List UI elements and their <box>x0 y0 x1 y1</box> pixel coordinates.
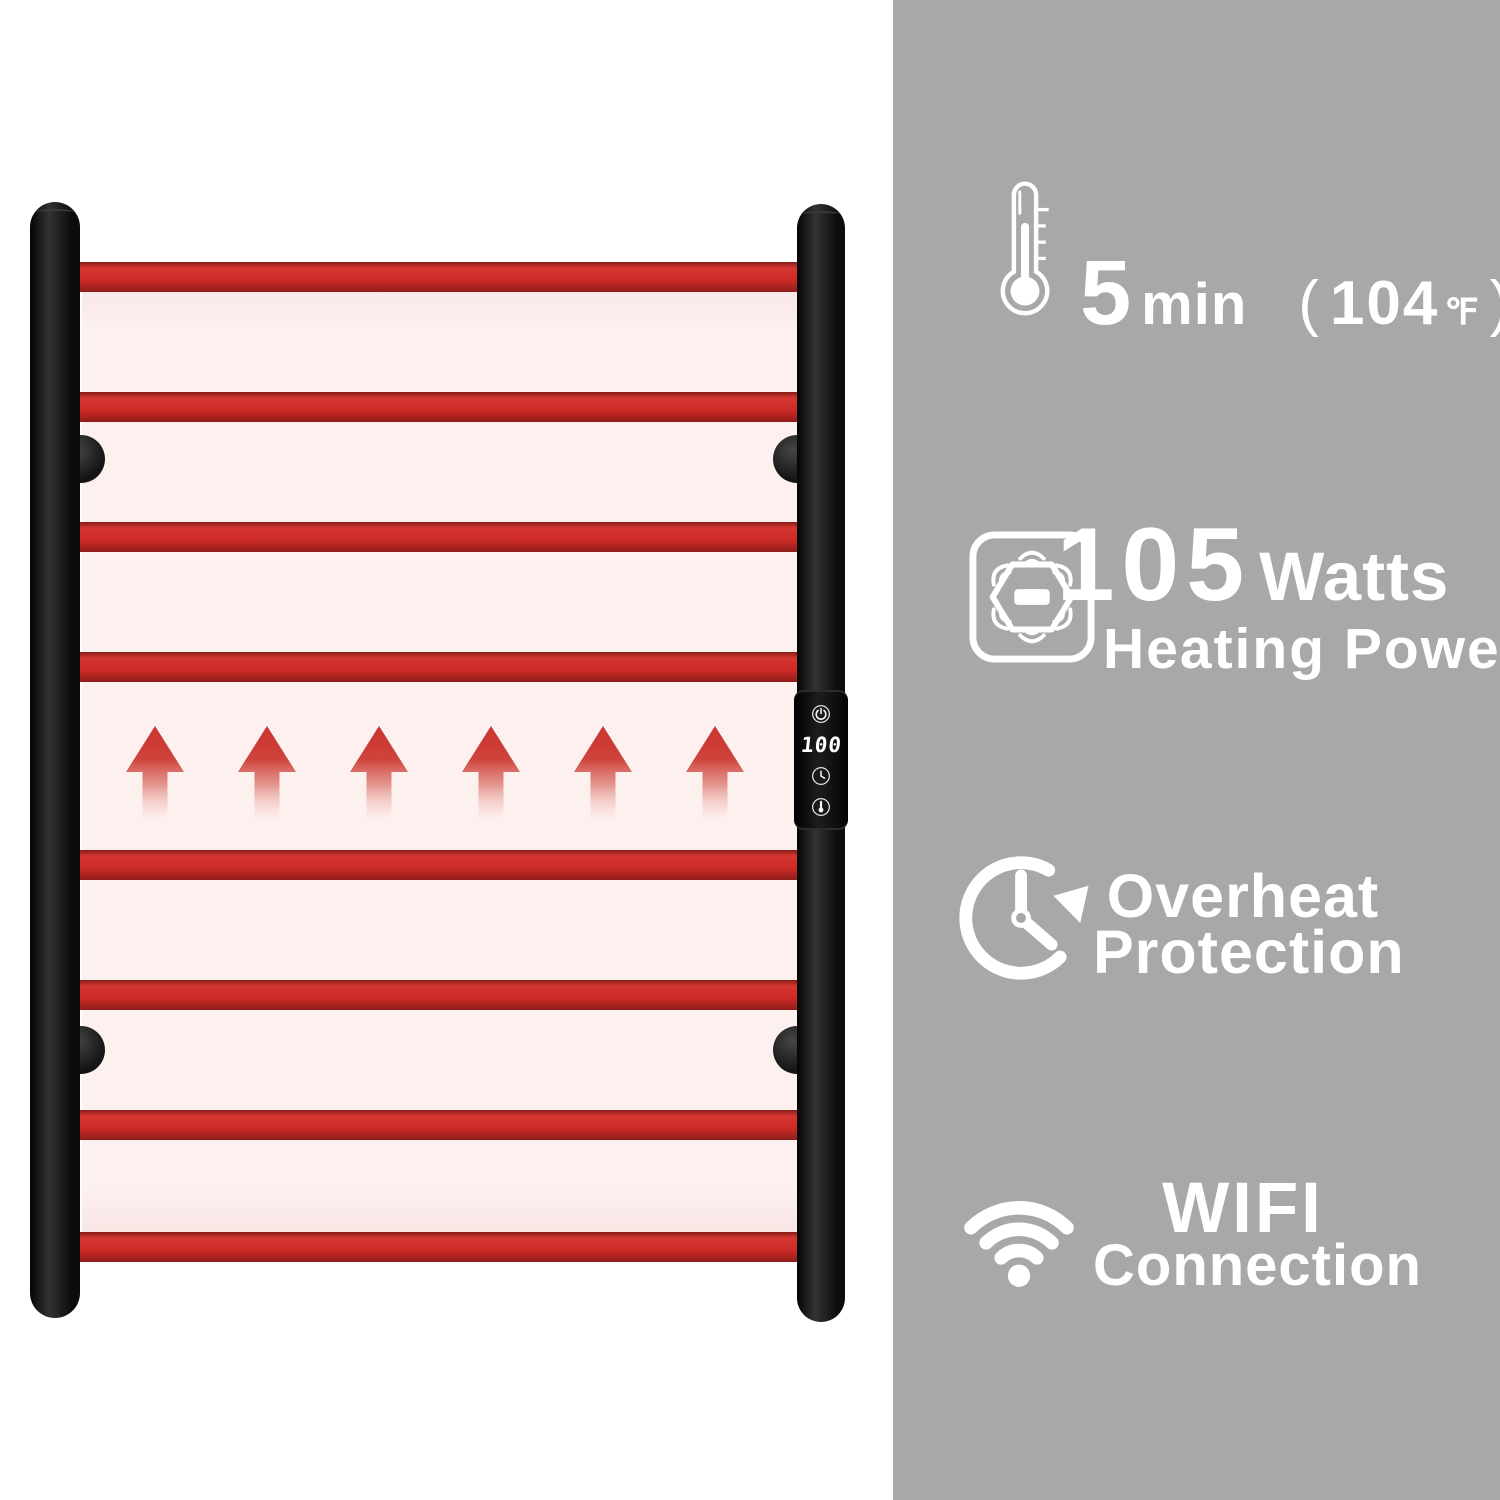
watts-unit: Watts <box>1259 542 1449 611</box>
heatup-minutes-value: 5 <box>1080 247 1131 339</box>
heat-arrow-icon <box>235 724 299 838</box>
thermometer-icon <box>988 156 1062 352</box>
timer-icon <box>811 766 831 786</box>
feature-heatup-text: 5 min ( 104 ℉ ) <box>1080 247 1500 339</box>
heating-bar <box>74 262 804 292</box>
heat-arrow-icon <box>123 724 187 838</box>
heating-bar <box>74 980 804 1010</box>
fahrenheit-symbol: ℉ <box>1444 294 1478 330</box>
heating-bar <box>74 652 804 682</box>
heat-arrow-icon <box>571 724 635 838</box>
note-paren-open: ( <box>1287 273 1330 335</box>
heating-bar <box>74 392 804 422</box>
watts-value: 105 <box>1057 513 1252 617</box>
feature-overheat-text: Overheat Protection <box>1093 868 1393 980</box>
wifi-label-line2: Connection <box>1093 1240 1393 1292</box>
heat-arrow-icon <box>347 724 411 838</box>
heatup-temperature-value: 104 <box>1330 273 1439 335</box>
feature-wifi-text: WIFI Connection <box>1093 1178 1393 1292</box>
temperature-display: 100 <box>799 735 842 756</box>
heating-power-label: Heating Power <box>1103 621 1403 678</box>
left-rail <box>30 202 80 1318</box>
heatup-minutes-unit: min <box>1141 276 1247 334</box>
heating-bar <box>74 1232 804 1262</box>
power-icon <box>811 704 831 724</box>
wifi-label-line1: WIFI <box>1093 1178 1393 1240</box>
overheat-label-line2: Protection <box>1093 924 1393 980</box>
overheat-label-line1: Overheat <box>1093 868 1393 924</box>
control-panel: 100 <box>794 690 848 830</box>
wifi-icon <box>956 1176 1084 1294</box>
heating-bar <box>74 850 804 880</box>
heat-arrow-icon <box>683 724 747 838</box>
feature-heating-power-text: 105 Watts Heating Power <box>1103 513 1403 678</box>
note-paren-close: ) <box>1479 273 1500 335</box>
heating-bar <box>74 522 804 552</box>
temperature-icon <box>811 797 831 817</box>
overheat-protection-icon <box>950 843 1098 991</box>
product-infographic: 100 <box>0 0 1500 1500</box>
heating-bar <box>74 1110 804 1140</box>
heat-arrow-icon <box>459 724 523 838</box>
